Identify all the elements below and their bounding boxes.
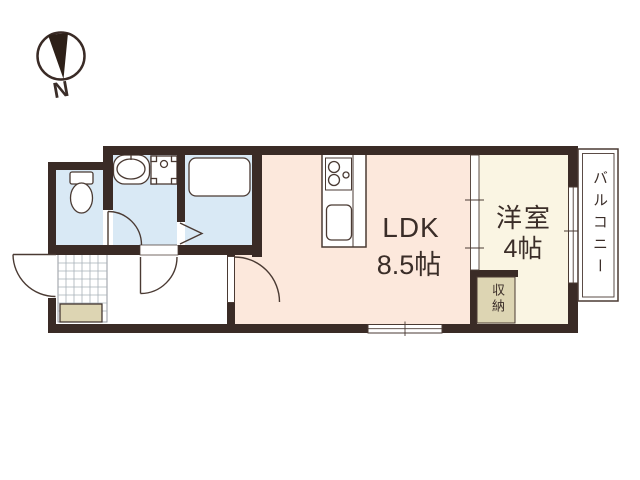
entrance-area — [58, 254, 107, 322]
toilet-fixture-icon — [70, 172, 93, 213]
kitchen-sink-icon — [327, 205, 352, 240]
washroom-door-swing — [141, 257, 178, 294]
wall-closet-top — [470, 270, 518, 277]
burner-small-icon — [343, 172, 349, 178]
ldk-size-label: 8.5帖 — [353, 243, 465, 282]
shoe-cabinet — [60, 304, 102, 322]
closet-label: 収納 — [488, 283, 507, 315]
wall-top-main — [252, 146, 578, 155]
wall-bath-ldk — [252, 155, 262, 257]
western-room-size-label: 4帖 — [477, 229, 569, 265]
burner-icon — [329, 175, 340, 186]
wall-top-water — [103, 146, 262, 155]
washroom-door-opening — [140, 245, 178, 255]
compass-icon — [38, 33, 85, 80]
balcony-label: バルコニー — [589, 170, 610, 280]
entrance-door-swing — [13, 255, 56, 297]
wall-left-upper — [48, 162, 56, 253]
ldk-label: LDK — [355, 212, 467, 244]
wall-washroom-bathroom — [177, 155, 185, 222]
bathtub-icon — [189, 158, 250, 196]
washbasin-icon — [114, 151, 150, 184]
ldk-door-leaf — [228, 257, 235, 303]
wall-bottom — [48, 324, 578, 333]
floor-plan-page: LDK 8.5帖 洋室 4帖 収納 バルコニー N — [0, 0, 640, 480]
washing-machine-pan-icon — [151, 156, 177, 184]
wall-toilet-washroom — [103, 155, 113, 210]
burner-icon — [329, 162, 340, 173]
wall-closet-left — [470, 277, 477, 324]
